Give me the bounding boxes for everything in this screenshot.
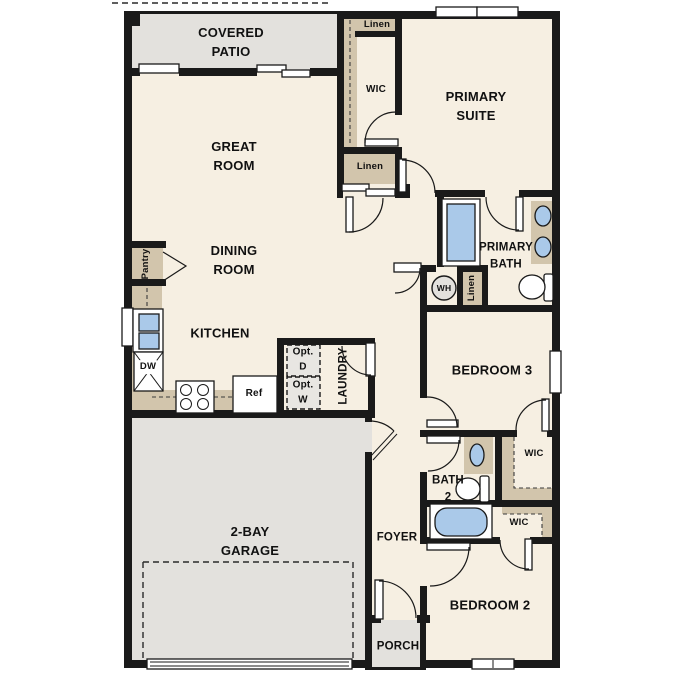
wall-suite-south-b (519, 190, 560, 197)
floor-plan-graphics (0, 0, 687, 687)
wall-laundry-east-lower (368, 374, 375, 418)
wall-linen-top-south (355, 31, 399, 37)
wic-bedroom2-floor (502, 514, 542, 537)
wall-foyer-south-b (417, 615, 430, 623)
water-heater (432, 276, 456, 300)
primary-sink-b (535, 237, 551, 257)
bath2-tub (435, 508, 487, 536)
wall-patio-south-a (124, 68, 140, 76)
wall-porch-east (420, 622, 426, 670)
wall-patio-south-b (179, 68, 257, 76)
wall-pantry-north (124, 241, 166, 248)
primary-suite-window-a (436, 7, 477, 17)
bath2-toilet-bowl (456, 478, 480, 500)
bedroom3-door-leaf (427, 420, 458, 427)
garage-fill (131, 414, 372, 664)
wall-bed2-north-b (530, 537, 560, 544)
wall-linen-mid-north (337, 147, 402, 154)
wall-bottom-bed2-right (513, 660, 560, 668)
wall-bottom-garage-left (124, 660, 147, 668)
primary-shower (447, 204, 475, 261)
wall-laundry-west (277, 338, 284, 418)
porch-front-edge (366, 667, 426, 670)
garage-door-opening (147, 659, 352, 669)
bath2-toilet-tank (480, 476, 489, 502)
wall-wic-primary-east-upper (395, 11, 402, 115)
hall-door-leaf (346, 197, 353, 232)
wall-bed2-west-lower (420, 586, 427, 618)
patio-slider-panel-b (282, 70, 310, 77)
optional-washer-box (287, 377, 320, 409)
wall-foyer-east-a (420, 472, 427, 503)
wall-bottom-bed2-left (423, 660, 473, 668)
wall-bed3-west (420, 305, 427, 398)
great-room-window (139, 64, 179, 73)
primary-sink-a (535, 206, 551, 226)
bath2-door-leaf (427, 436, 460, 443)
wall-suite-south-a (435, 190, 485, 197)
linen-mid-bypass-a (342, 184, 369, 191)
linen-mid-bypass-b (366, 189, 395, 196)
kitchen-window (122, 308, 133, 346)
wic-primary-door-leaf (365, 139, 398, 146)
range (176, 381, 214, 413)
linen-top-fill (355, 19, 399, 32)
refrigerator-box (233, 376, 277, 413)
pantry-fill (131, 248, 163, 279)
wic-bedroom3-door-leaf (542, 399, 549, 431)
primary-toilet-bowl (519, 275, 545, 299)
laundry-door-leaf (366, 343, 375, 376)
bedroom3-window (550, 351, 561, 393)
primary-suite-door-leaf (399, 159, 406, 192)
wall-bath2-wic-divider (495, 430, 502, 507)
front-door-leaf (375, 580, 383, 619)
kitchen-sink-bowl-b (139, 333, 159, 349)
wall-exterior-right (552, 11, 560, 668)
wall-pantry-south (124, 279, 166, 286)
bedroom2-door-leaf (427, 543, 470, 550)
wall-linen-bath-east (482, 265, 488, 312)
wic-bedroom3-floor (514, 435, 553, 488)
wall-laundry-north (277, 338, 375, 345)
wall-wh-east (457, 265, 463, 312)
linen-mid-fill (344, 154, 395, 184)
wic-bedroom2-door-leaf (525, 539, 532, 570)
wall-wic-primary-west (337, 11, 344, 184)
porch-fill (372, 620, 420, 669)
wall-garage-east-lower (365, 452, 372, 670)
wall-bath-bed3-divider (427, 305, 560, 312)
wall-foyer-east-b (420, 507, 427, 538)
primary-bath-door-leaf (516, 197, 523, 231)
patio-edge-line (132, 11, 337, 14)
bath2-sink (470, 444, 484, 466)
primary-suite-window-b (477, 7, 518, 17)
optional-dryer-box (287, 345, 320, 376)
floor-plan: COVERED PATIO GREAT ROOM DINING ROOM KIT… (0, 0, 687, 687)
hall-wh-door-leaf (394, 263, 421, 272)
kitchen-sink-bowl-a (139, 314, 159, 331)
covered-patio-fill (132, 14, 337, 70)
linen-bath-fill (463, 272, 482, 305)
